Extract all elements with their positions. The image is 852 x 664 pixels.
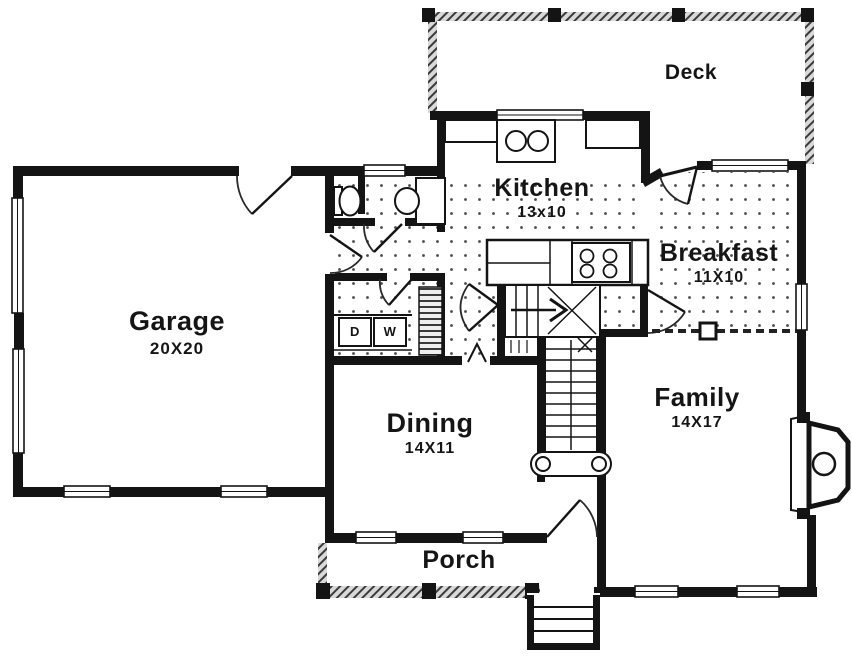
island-counter [487, 240, 648, 285]
family-label: Family [654, 384, 739, 410]
porch-label: Porch [422, 548, 495, 573]
kitchen-sink-icon [497, 120, 555, 162]
deck-label: Deck [665, 62, 717, 83]
kitchen-counter [445, 120, 640, 162]
garage-label: Garage [129, 308, 225, 335]
dining-size: 14X11 [405, 441, 455, 457]
stove-icon [572, 243, 630, 282]
breakfast-size: 11X10 [694, 270, 744, 286]
toilet-icon [334, 187, 361, 216]
kitchen-label: Kitchen [494, 176, 589, 201]
staircase [505, 285, 611, 476]
kitchen-size: 13x10 [517, 205, 567, 221]
breakfast-label: Breakfast [660, 241, 778, 266]
washer-label: W [384, 325, 397, 338]
dining-label: Dining [387, 410, 474, 437]
fireplace-icon [791, 412, 848, 519]
dryer-label: D [350, 325, 360, 338]
pantry-shelves [419, 287, 442, 355]
family-size: 14X17 [671, 415, 722, 431]
garage-size: 20X20 [150, 340, 204, 357]
floor-plan: Deck Kitchen 13x10 Breakfast 11X10 Garag… [0, 0, 852, 664]
front-steps [527, 593, 600, 650]
